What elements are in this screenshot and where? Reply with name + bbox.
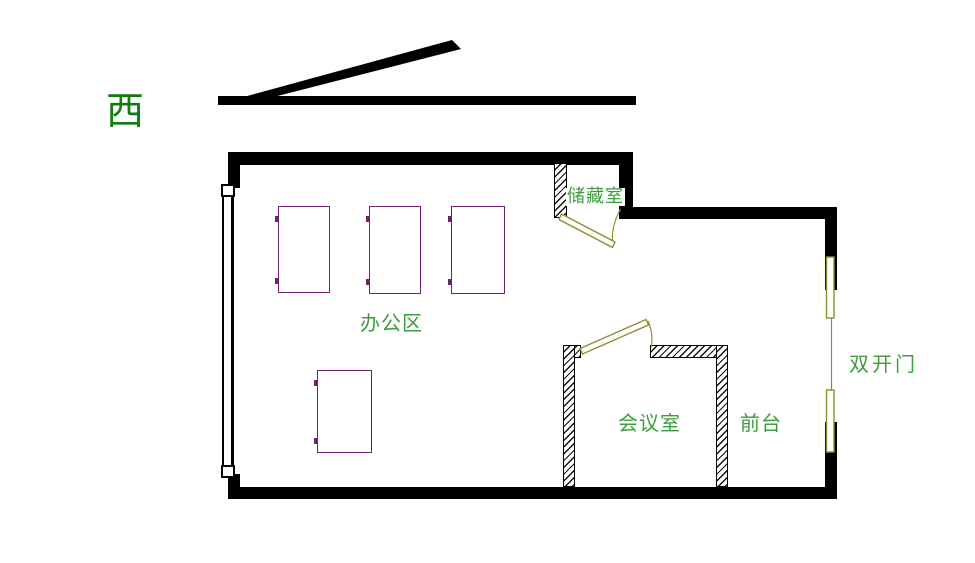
desk-handle-icon: [314, 438, 319, 444]
desk-4: [317, 370, 372, 453]
wall-upper-right: [619, 207, 837, 219]
desk-1: [278, 206, 330, 293]
meeting-room-label: 会议室: [618, 413, 681, 433]
desk-handle-icon: [314, 380, 319, 386]
desk-handle-icon: [366, 216, 371, 222]
double-door-label: 双开门: [849, 354, 918, 374]
office-area-label: 办公区: [360, 313, 423, 333]
hatch-wall-meeting-right: [716, 345, 728, 487]
meeting-door-arc: [648, 321, 652, 347]
window-outer-line: [222, 196, 224, 466]
wall-right-lower: [825, 422, 837, 499]
desk-handle-icon: [448, 216, 453, 222]
floor-plan-canvas: 西 储: [0, 0, 975, 563]
wall-bottom: [228, 487, 837, 499]
wall-top: [228, 152, 633, 165]
storage-door-leaf: [559, 214, 615, 248]
west-arrow-shaft: [218, 96, 636, 105]
window-cap-bottom: [221, 465, 235, 478]
west-arrow-wing: [218, 40, 461, 104]
desk-3: [451, 206, 505, 294]
desk-handle-icon: [448, 279, 453, 285]
storage-room-label: 储藏室: [566, 188, 625, 206]
wall-left-upper-stub: [228, 152, 240, 188]
desk-handle-icon: [275, 216, 280, 222]
reception-label: 前台: [740, 413, 782, 433]
wall-right-upper: [825, 207, 837, 290]
window-inner-line: [231, 196, 234, 466]
meeting-door-leaf: [580, 320, 649, 355]
desk-2: [369, 206, 421, 294]
hatch-wall-meeting-left: [563, 345, 575, 487]
compass-west-label: 西: [106, 92, 144, 130]
window-cap-top: [221, 184, 235, 197]
desk-handle-icon: [275, 278, 280, 284]
desk-handle-icon: [366, 279, 371, 285]
